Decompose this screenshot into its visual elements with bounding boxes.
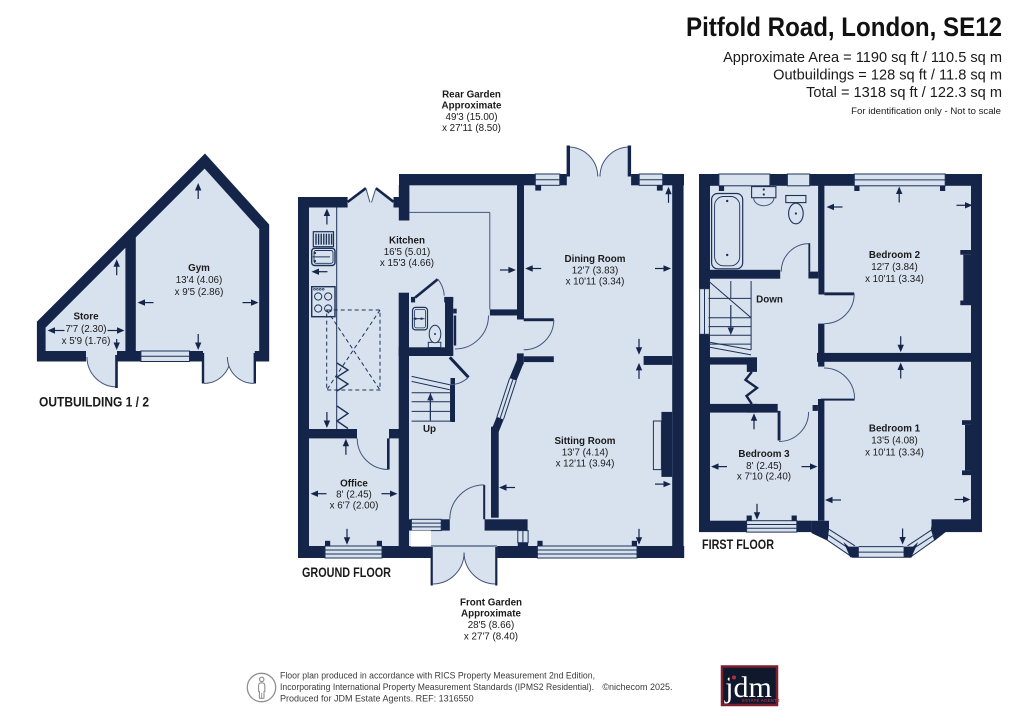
svg-text:Sitting Room: Sitting Room (555, 436, 616, 447)
svg-text:x 5'9 (1.76): x 5'9 (1.76) (62, 336, 111, 347)
svg-text:Approximate: Approximate (442, 101, 502, 112)
svg-text:7'7 (2.30): 7'7 (2.30) (65, 324, 106, 335)
svg-text:x 10'11 (3.34): x 10'11 (3.34) (865, 448, 924, 459)
svg-text:x 10'11 (3.34): x 10'11 (3.34) (566, 277, 625, 288)
svg-text:Total = 1318 sq ft / 122.3 sq: Total = 1318 sq ft / 122.3 sq m (806, 85, 1002, 101)
svg-text:Approximate Area = 1190 sq ft: Approximate Area = 1190 sq ft / 110.5 sq… (723, 50, 1002, 66)
svg-text:12'7 (3.84): 12'7 (3.84) (871, 262, 918, 273)
svg-text:Floor plan produced in accorda: Floor plan produced in accordance with R… (280, 671, 595, 681)
svg-text:Outbuildings = 128 sq ft / 11.: Outbuildings = 128 sq ft / 11.8 sq m (773, 67, 1002, 83)
svg-text:GROUND FLOOR: GROUND FLOOR (302, 564, 391, 580)
svg-text:Pitfold Road, London, SE12: Pitfold Road, London, SE12 (686, 12, 1002, 42)
svg-text:49'3 (15.00): 49'3 (15.00) (446, 112, 498, 123)
svg-text:Front Garden: Front Garden (460, 597, 522, 608)
svg-text:x 7'10 (2.40): x 7'10 (2.40) (737, 472, 791, 483)
svg-text:OUTBUILDING 1 / 2: OUTBUILDING 1 / 2 (39, 394, 149, 410)
svg-text:Store: Store (73, 312, 99, 323)
svg-text:x 15'3 (4.66): x 15'3 (4.66) (380, 258, 434, 269)
svg-text:13'7 (4.14): 13'7 (4.14) (562, 447, 609, 458)
svg-text:ESTATE AGENTS: ESTATE AGENTS (742, 698, 780, 703)
svg-text:8' (2.45): 8' (2.45) (336, 490, 372, 501)
svg-text:x 10'11 (3.34): x 10'11 (3.34) (865, 274, 924, 285)
svg-text:©nichecom 2025.: ©nichecom 2025. (602, 682, 672, 692)
svg-text:Approximate: Approximate (461, 609, 521, 620)
svg-text:Up: Up (423, 424, 436, 435)
svg-text:FIRST FLOOR: FIRST FLOOR (702, 536, 774, 552)
svg-text:16'5 (5.01): 16'5 (5.01) (384, 247, 431, 258)
svg-text:Rear Garden: Rear Garden (442, 90, 501, 101)
svg-text:13'5 (4.08): 13'5 (4.08) (871, 436, 918, 447)
svg-text:x 27'7 (8.40): x 27'7 (8.40) (464, 631, 518, 642)
svg-text:For identification only - Not: For identification only - Not to scale (851, 106, 1001, 117)
svg-text:8' (2.45): 8' (2.45) (746, 461, 782, 472)
svg-text:13'4 (4.06): 13'4 (4.06) (176, 275, 223, 286)
svg-text:Bedroom 3: Bedroom 3 (738, 449, 790, 460)
svg-text:28'5 (8.66): 28'5 (8.66) (468, 620, 515, 631)
svg-text:Bedroom 2: Bedroom 2 (869, 250, 921, 261)
svg-text:x 9'5 (2.86): x 9'5 (2.86) (175, 287, 224, 298)
svg-text:Incorporating International Pr: Incorporating International Property Mea… (280, 682, 594, 692)
svg-text:x 6'7 (2.00): x 6'7 (2.00) (330, 501, 379, 512)
svg-text:Bedroom 1: Bedroom 1 (869, 424, 921, 435)
svg-text:Kitchen: Kitchen (389, 236, 425, 247)
svg-text:x 27'11 (8.50): x 27'11 (8.50) (442, 123, 501, 134)
svg-text:Down: Down (756, 295, 783, 306)
svg-text:Gym: Gym (188, 263, 210, 274)
svg-text:Dining Room: Dining Room (565, 254, 626, 265)
svg-text:Office: Office (340, 479, 368, 490)
svg-text:x 12'11 (3.94): x 12'11 (3.94) (556, 459, 615, 470)
svg-text:Produced for JDM Estate Agents: Produced for JDM Estate Agents. REF: 131… (280, 694, 474, 704)
svg-text:12'7 (3.83): 12'7 (3.83) (572, 265, 619, 276)
